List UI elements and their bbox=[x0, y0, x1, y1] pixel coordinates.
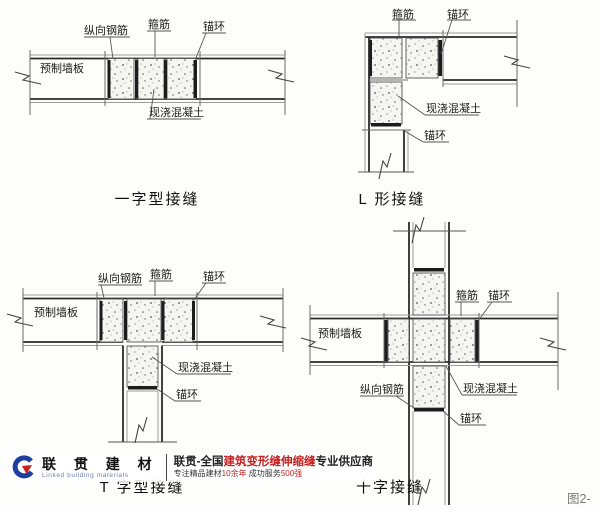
brand-slogan-block: 联贯-全国建筑变形缝伸缩缝专业供应商 专注精品建材10余年 成功服务500强 bbox=[174, 456, 373, 479]
label-cast-concrete: 现浇混凝土 bbox=[463, 381, 518, 395]
slogan2-highlight1: 10余年 bbox=[222, 469, 247, 478]
slogan-suffix: 专业供应商 bbox=[316, 456, 374, 468]
label-stirrup: 箍筋 bbox=[150, 267, 172, 281]
slogan-prefix: 联贯-全国 bbox=[174, 456, 224, 468]
figure-number: 图2- bbox=[567, 488, 591, 507]
cast-concrete-cells bbox=[108, 59, 198, 100]
caption-l-joint: L 形接缝 bbox=[359, 191, 426, 208]
diagram-l-joint: 箍筋 锚环 现浇混凝土 锚环 L 形接缝 bbox=[358, 7, 530, 208]
slogan2-part2: 成功服务 bbox=[247, 469, 281, 478]
label-precast-panel: 预制墙板 bbox=[34, 305, 78, 319]
brand-name-cn: 联 贯 建 材 bbox=[42, 457, 159, 472]
label-anchor-ring: 锚环 bbox=[203, 19, 225, 33]
label-precast-panel: 预制墙板 bbox=[318, 326, 362, 340]
brand-slogan-line1: 联贯-全国建筑变形缝伸缩缝专业供应商 bbox=[174, 456, 373, 469]
label-longitudinal-rebar: 纵向钢筋 bbox=[360, 382, 404, 396]
cast-concrete-cells bbox=[100, 299, 196, 390]
label-cast-concrete: 现浇混凝土 bbox=[149, 105, 204, 119]
label-stirrup: 箍筋 bbox=[392, 7, 414, 21]
slogan2-highlight2: 500强 bbox=[281, 469, 302, 478]
label-longitudinal-rebar: 纵向钢筋 bbox=[84, 23, 128, 37]
slogan2-part1: 专注精品建材 bbox=[174, 469, 222, 478]
label-anchor-ring-top: 锚环 bbox=[447, 7, 469, 21]
label-cast-concrete: 现浇混凝土 bbox=[426, 101, 481, 115]
label-anchor-ring-right: 锚环 bbox=[488, 288, 510, 302]
label-stirrup: 箍筋 bbox=[456, 288, 478, 302]
label-stirrup: 箍筋 bbox=[148, 17, 170, 31]
label-anchor-ring-top: 锚环 bbox=[203, 269, 225, 283]
brand-footer: 联 贯 建 材 Linked building materials 联贯-全国建… bbox=[8, 453, 376, 482]
label-longitudinal-rebar: 纵向钢筋 bbox=[98, 271, 142, 285]
drawing-sheet: 纵向钢筋 箍筋 锚环 预制墙板 现浇混凝土 一字型接缝 bbox=[0, 0, 600, 511]
brand-logo-icon bbox=[11, 454, 35, 481]
label-anchor-ring-bottom: 锚环 bbox=[460, 411, 482, 425]
label-anchor-ring-bottom: 锚环 bbox=[424, 128, 446, 142]
label-anchor-ring-bottom: 锚环 bbox=[176, 387, 198, 401]
brand-divider bbox=[166, 454, 167, 481]
diagram-straight-joint: 纵向钢筋 箍筋 锚环 预制墙板 现浇混凝土 一字型接缝 bbox=[15, 17, 294, 208]
label-cast-concrete: 现浇混凝土 bbox=[178, 360, 233, 374]
joint-detail-figure: 纵向钢筋 箍筋 锚环 预制墙板 现浇混凝土 一字型接缝 bbox=[0, 0, 600, 511]
brand-name-en: Linked building materials bbox=[42, 472, 159, 479]
caption-straight-joint: 一字型接缝 bbox=[114, 191, 199, 208]
slogan-highlight: 建筑变形缝伸缩缝 bbox=[224, 456, 316, 468]
brand-slogan-line2: 专注精品建材10余年 成功服务500强 bbox=[174, 469, 373, 479]
brand-text-block: 联 贯 建 材 Linked building materials bbox=[42, 457, 159, 479]
label-precast-panel: 预制墙板 bbox=[40, 61, 84, 75]
